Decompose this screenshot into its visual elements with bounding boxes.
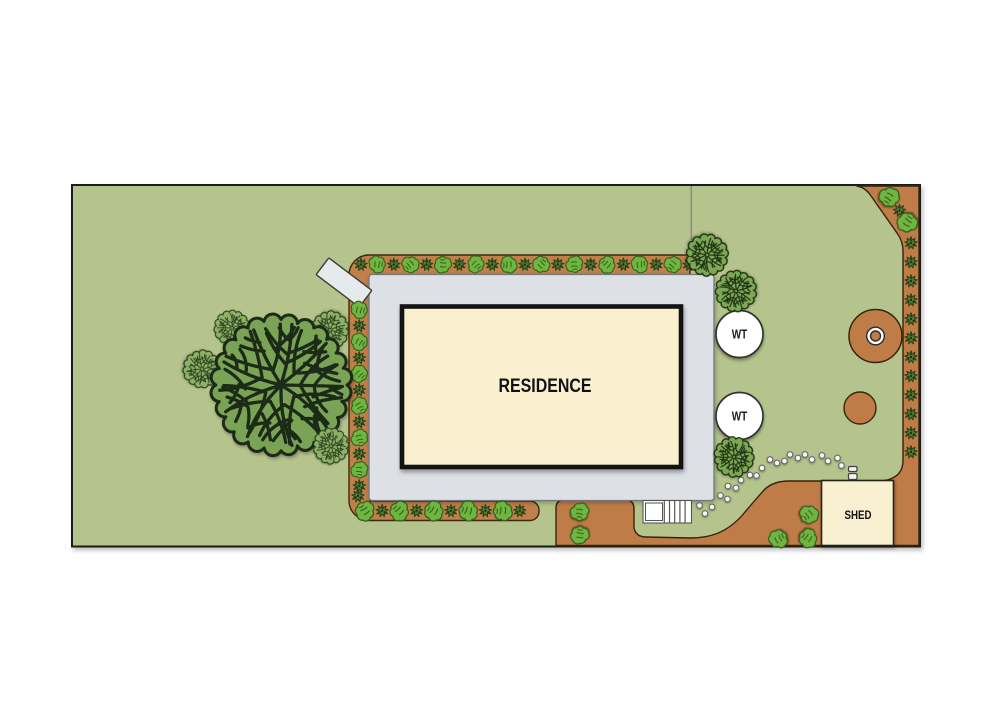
svg-text:WT: WT (732, 327, 748, 342)
svg-text:RESIDENCE: RESIDENCE (499, 375, 592, 397)
svg-text:SHED: SHED (845, 508, 872, 522)
svg-text:WT: WT (732, 409, 748, 424)
